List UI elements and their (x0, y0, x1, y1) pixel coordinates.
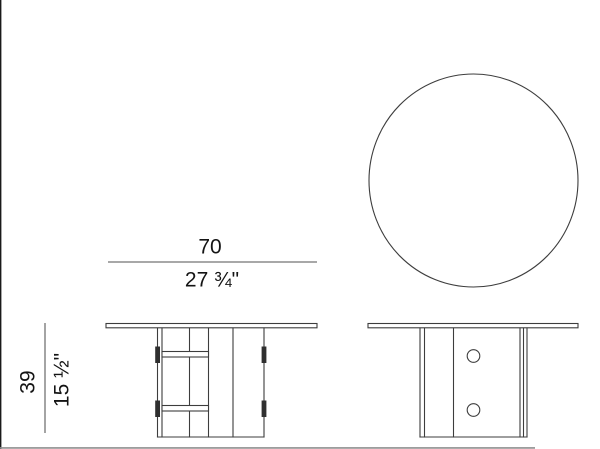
front-tabletop (106, 324, 317, 328)
tabletop-circle (369, 74, 578, 287)
table-dimension-drawing: 70 27 ¾" 39 15 ½" (0, 0, 600, 449)
front-connector-upper-right (262, 347, 267, 364)
height-dimension-label-cm: 39 (17, 370, 40, 393)
front-connector-lower-left (155, 401, 160, 418)
front-stretcher-upper (162, 352, 209, 358)
width-dimension: 70 27 ¾" (108, 236, 317, 292)
width-dimension-label-cm: 70 (198, 236, 221, 259)
front-connector-lower-right (262, 401, 267, 418)
side-bolt-hole-lower (467, 404, 480, 417)
front-view (106, 324, 317, 438)
side-bolt-hole-upper (467, 350, 480, 363)
front-stretcher-lower (162, 406, 209, 412)
technical-drawing-page: 70 27 ¾" 39 15 ½" (0, 0, 600, 449)
side-tabletop (368, 324, 578, 328)
side-view (368, 324, 578, 438)
front-connector-upper-left (155, 347, 160, 364)
top-view (369, 74, 578, 287)
height-dimension-label-inches: 15 ½" (51, 353, 74, 407)
height-dimension: 39 15 ½" (17, 323, 74, 433)
width-dimension-label-inches: 27 ¾" (185, 269, 239, 292)
